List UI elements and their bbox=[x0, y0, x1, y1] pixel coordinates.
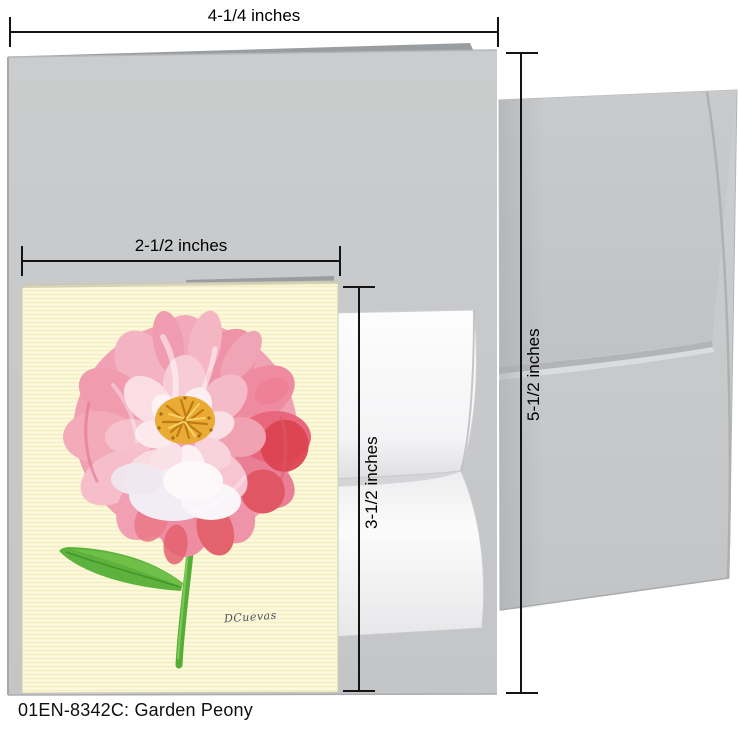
dim-small-card-height-label: 3-1/2 inches bbox=[362, 400, 384, 566]
dim-large-card-width-cap-left bbox=[9, 17, 11, 47]
product-mockup-page: DCuevas 4-1/4 inches 2-1/2 inches 5-1/2 … bbox=[0, 0, 738, 738]
dim-small-card-width-cap-left bbox=[21, 246, 23, 276]
product-caption: 01EN-8342C: Garden Peony bbox=[18, 700, 253, 721]
dim-large-card-height-line bbox=[520, 54, 522, 694]
dim-large-card-height-cap-bottom bbox=[506, 692, 538, 694]
dim-small-card-width-cap-right bbox=[339, 246, 341, 276]
dim-small-card-height-cap-bottom bbox=[343, 690, 375, 692]
dim-large-card-height-label: 5-1/2 inches bbox=[524, 290, 546, 460]
small-card bbox=[22, 276, 338, 693]
dim-large-card-height-cap-top bbox=[506, 52, 538, 54]
flower-center bbox=[155, 396, 215, 444]
dim-small-card-height-line bbox=[358, 288, 360, 692]
dim-large-card-width-label: 4-1/4 inches bbox=[10, 6, 498, 26]
product-mockup-scene bbox=[0, 0, 738, 738]
dim-small-card-width-label: 2-1/2 inches bbox=[22, 236, 340, 256]
inner-note-card bbox=[330, 310, 484, 637]
dim-small-card-width-line bbox=[22, 260, 340, 262]
dim-large-card-width-line bbox=[10, 31, 498, 33]
dim-small-card-height-cap-top bbox=[343, 286, 375, 288]
dim-large-card-width-cap-right bbox=[497, 17, 499, 47]
